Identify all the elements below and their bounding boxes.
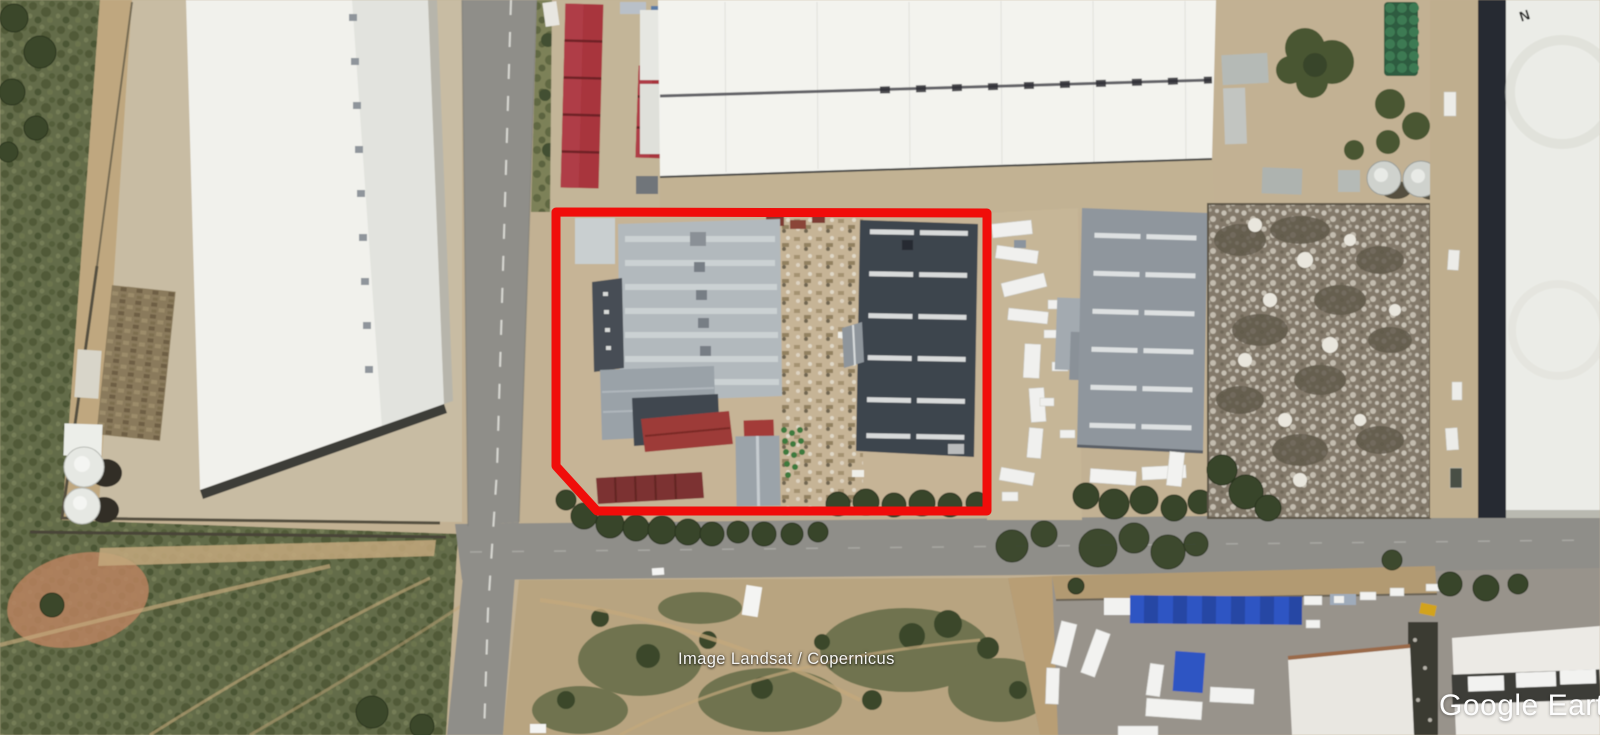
recycling-yard [1207, 204, 1430, 521]
satellite-imagery-canvas: N [0, 0, 1600, 735]
warehouse-property-dark [842, 220, 978, 457]
warehouse-topcenter [640, 0, 1216, 178]
blue-canopy-small [1173, 651, 1206, 693]
wrapped-pallet [74, 349, 101, 399]
building-bottom-white [1288, 646, 1414, 735]
bottom-right-yard [1008, 566, 1600, 735]
building-bottomright-white [1452, 626, 1600, 735]
satellite-map[interactable]: N [0, 0, 1600, 735]
blue-canopy-long [1130, 595, 1302, 624]
truck-cab [1104, 598, 1130, 615]
bottom-center-dirt [503, 568, 1052, 735]
warehouse-topleft [186, 0, 453, 499]
dark-wall-band [1478, 0, 1506, 518]
building-right-edge: N [1506, 0, 1600, 518]
green-drum-stack [1384, 2, 1419, 76]
terrain-layer: N [0, 0, 1600, 735]
